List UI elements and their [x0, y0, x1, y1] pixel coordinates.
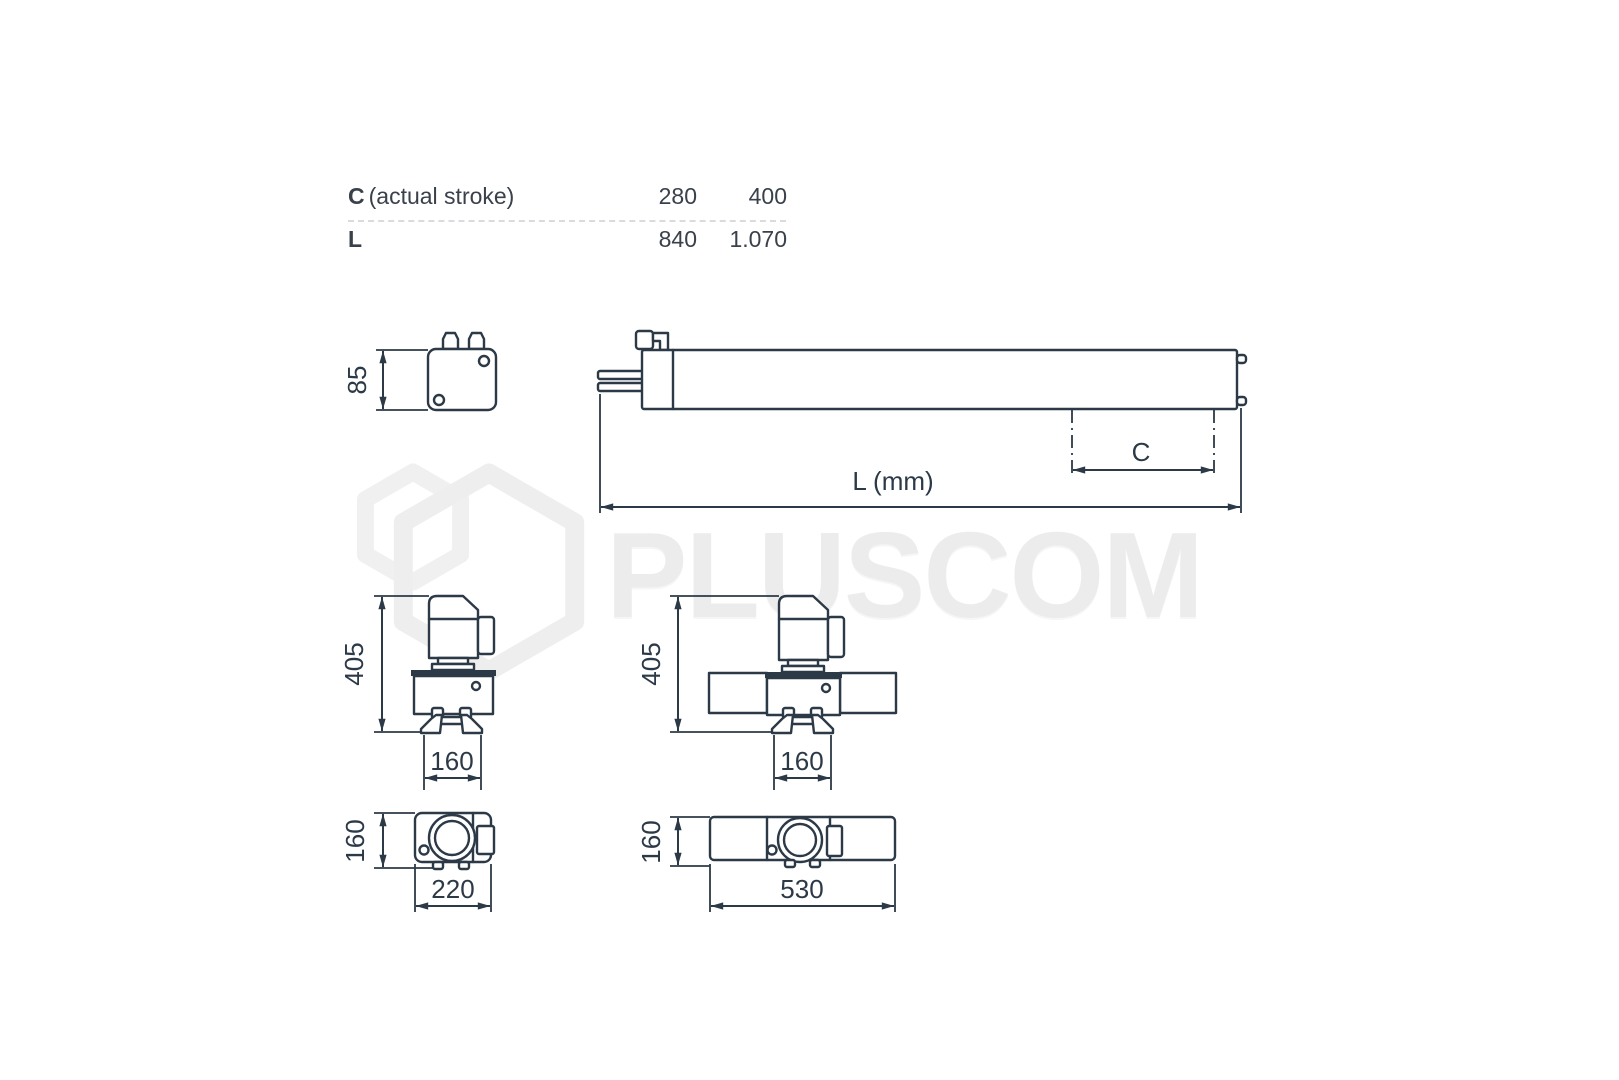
end-view-small: 85 — [342, 333, 496, 410]
dim-160-label: 160 — [636, 820, 666, 863]
side-view: C L (mm) — [598, 331, 1246, 513]
top-view-small: 160 220 — [340, 813, 494, 912]
drawing-canvas: 85 C L (mm) — [0, 0, 1619, 1080]
dim-C-label: C — [1132, 437, 1151, 467]
front-view-right: 405 160 — [636, 596, 896, 790]
technical-drawing-page: PLUSCOM C(actual stroke) 280 400 L 840 1… — [0, 0, 1619, 1080]
dim-85-label: 85 — [342, 366, 372, 395]
top-view-long: 160 530 — [636, 817, 895, 912]
dim-160-label: 160 — [430, 746, 473, 776]
dim-160-label: 160 — [340, 819, 370, 862]
dim-530-label: 530 — [780, 874, 823, 904]
dim-405-label: 405 — [339, 642, 369, 685]
dim-220-label: 220 — [431, 874, 474, 904]
dim-160-label: 160 — [780, 746, 823, 776]
dim-405-label: 405 — [636, 642, 666, 685]
front-view-left: 405 160 — [339, 596, 496, 790]
dim-L-label: L (mm) — [852, 466, 933, 496]
